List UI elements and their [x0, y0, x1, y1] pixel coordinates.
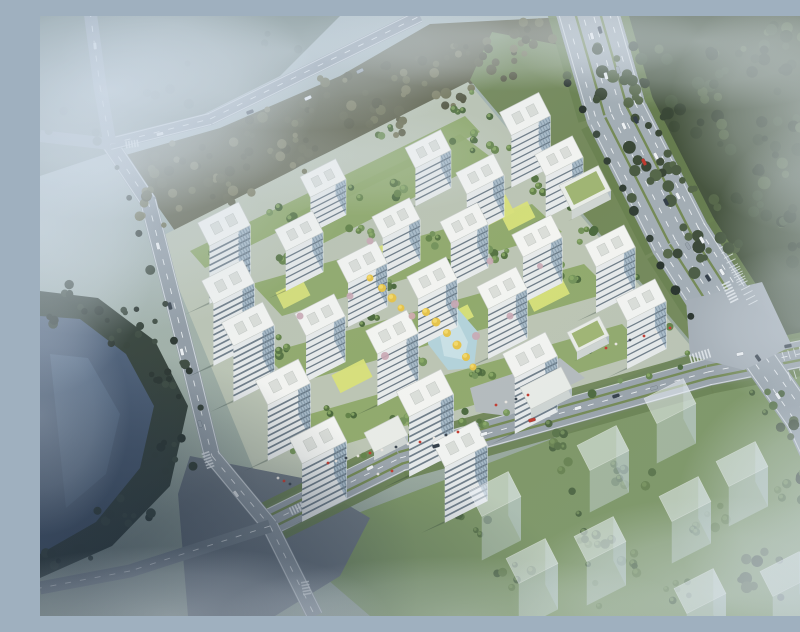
- aerial-masterplan-rendering: [40, 16, 800, 616]
- cool-tint: [40, 16, 800, 616]
- cool-tint-overlay: [40, 16, 800, 616]
- aerial-rendering-figure: [40, 16, 800, 616]
